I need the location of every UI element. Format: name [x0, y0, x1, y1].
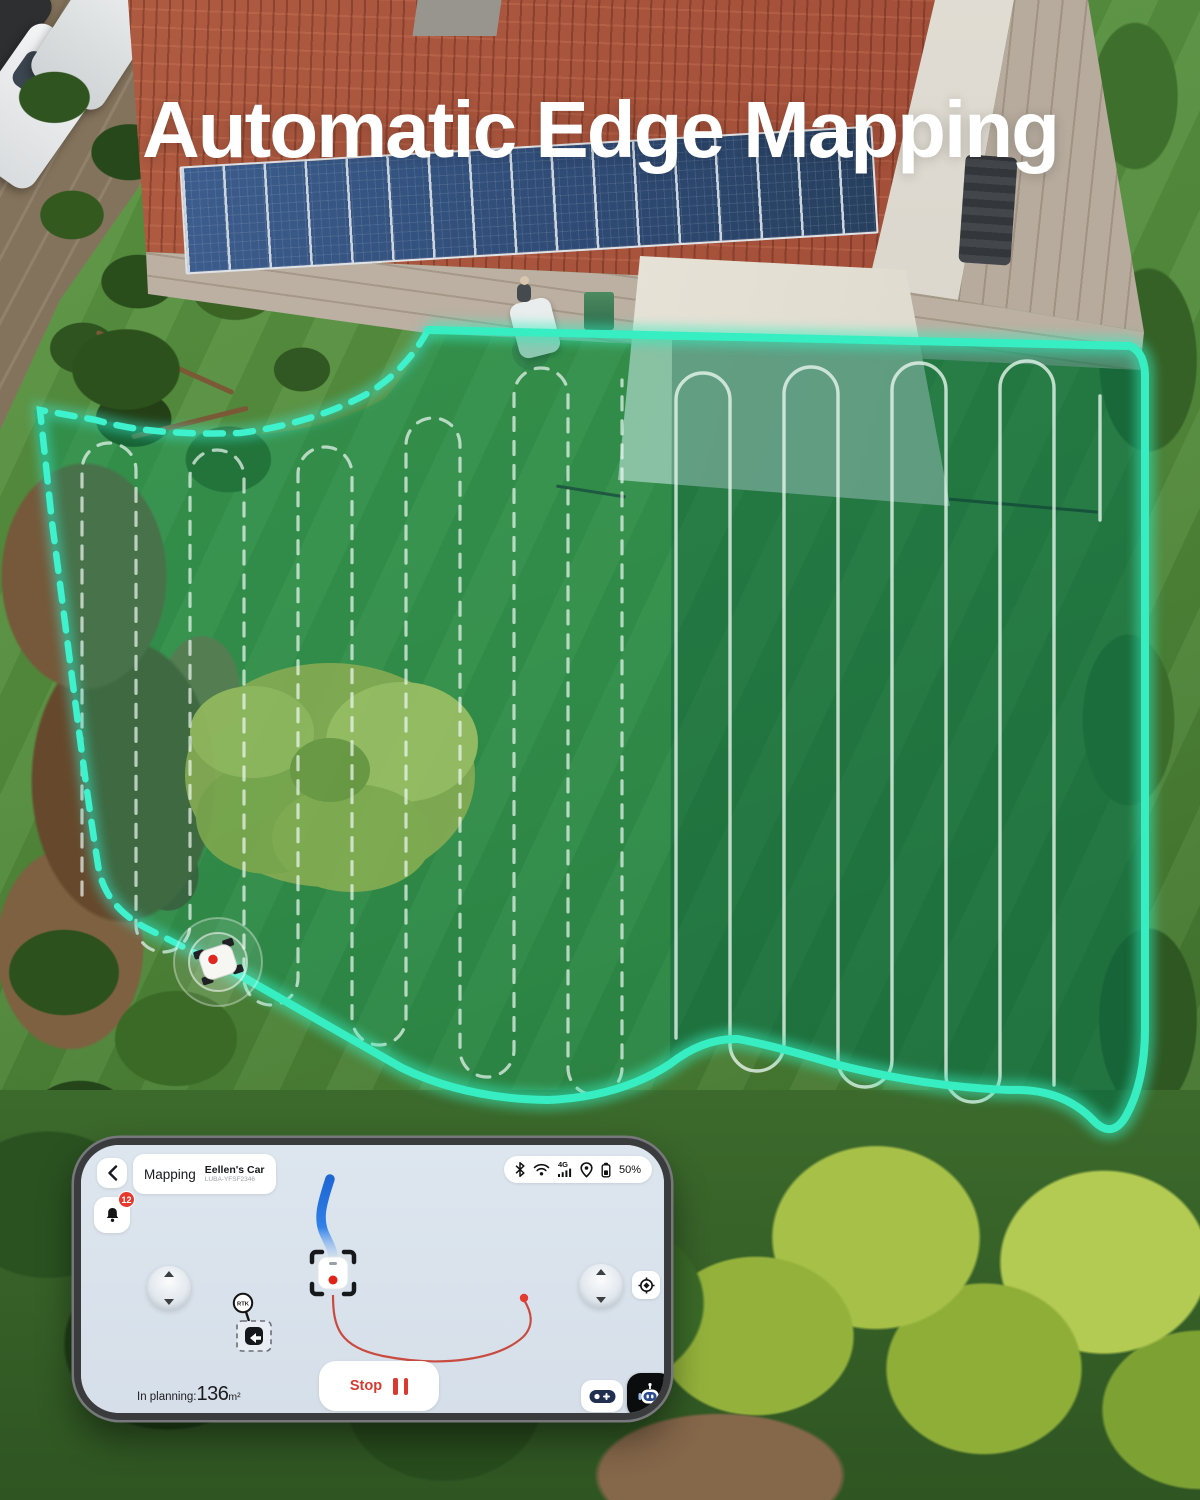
- back-button[interactable]: [97, 1158, 127, 1188]
- arrow-down-icon: [164, 1299, 174, 1305]
- robot-trail-blue: [321, 1179, 333, 1256]
- person: [517, 284, 531, 302]
- robot-marker[interactable]: [312, 1252, 354, 1294]
- gps-pin-icon: [580, 1162, 593, 1178]
- planning-label: In planning:: [137, 1391, 196, 1403]
- left-joystick[interactable]: [147, 1266, 191, 1310]
- right-joystick[interactable]: [579, 1264, 623, 1308]
- stop-label: Stop: [350, 1378, 382, 1394]
- rtk-label: RTK: [237, 1302, 250, 1308]
- planning-unit: m²: [228, 1391, 240, 1403]
- planning-area-readout: In planning: 136 m²: [137, 1383, 241, 1406]
- mode-device-pill[interactable]: Mapping Eellen's Car LUBA-YFSF2346: [133, 1154, 276, 1194]
- arrow-up-icon: [596, 1269, 606, 1275]
- status-bar: 4G 50%: [504, 1156, 652, 1183]
- battery-percent: 50%: [619, 1164, 641, 1176]
- dock-marker[interactable]: [237, 1321, 271, 1351]
- signal-bars-icon: [558, 1168, 572, 1177]
- stop-button[interactable]: Stop: [319, 1361, 439, 1411]
- sail-rope: [556, 485, 626, 499]
- manual-control-button[interactable]: [581, 1380, 623, 1412]
- robot-icon: [636, 1382, 664, 1410]
- chimney: [412, 0, 501, 36]
- rtk-marker[interactable]: RTK: [234, 1294, 252, 1321]
- notification-count-badge: 12: [118, 1191, 135, 1208]
- locate-target-icon: [638, 1277, 655, 1294]
- arrow-up-icon: [164, 1271, 174, 1277]
- page-title: Automatic Edge Mapping: [0, 84, 1200, 176]
- battery-icon: [601, 1162, 611, 1178]
- cellular-indicator: 4G: [558, 1163, 572, 1177]
- bell-icon: [104, 1206, 121, 1224]
- scene: Automatic Edge Mapping: [0, 0, 1200, 1500]
- robot-mode-button[interactable]: [627, 1373, 664, 1413]
- phone-mockup: RTK Mapping Eellen's Car LUBA-YFSF2346: [74, 1138, 671, 1420]
- person-head: [520, 276, 529, 285]
- locate-button[interactable]: [632, 1271, 660, 1299]
- mode-label: Mapping: [144, 1167, 196, 1182]
- arrow-down-icon: [596, 1297, 606, 1303]
- device-id: LUBA-YFSF2346: [205, 1176, 265, 1183]
- bluetooth-icon: [515, 1162, 525, 1177]
- device-name: Eellen's Car: [205, 1164, 265, 1176]
- route-endpoint[interactable]: [520, 1294, 528, 1302]
- network-type: 4G: [558, 1160, 568, 1169]
- chevron-left-icon: [107, 1165, 118, 1181]
- wifi-icon: [533, 1163, 550, 1176]
- planning-value: 136: [196, 1383, 228, 1406]
- planned-route-red: [333, 1295, 531, 1361]
- app-screen: RTK Mapping Eellen's Car LUBA-YFSF2346: [81, 1145, 664, 1413]
- deck-planter: [584, 292, 614, 330]
- gamepad-icon: [589, 1388, 616, 1405]
- pause-icon: [393, 1378, 408, 1395]
